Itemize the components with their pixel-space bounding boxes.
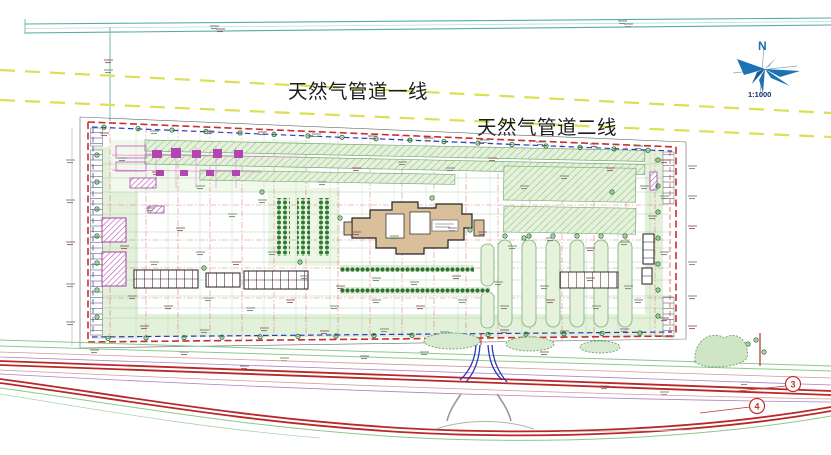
micro-annotation xyxy=(590,144,599,147)
micro-annotation xyxy=(240,366,249,369)
road-marker-4-label: 4 xyxy=(754,402,759,412)
micro-annotation xyxy=(372,300,381,303)
hedge-row xyxy=(340,265,474,272)
parking-strip-left xyxy=(91,150,103,335)
tree-icon xyxy=(762,350,766,354)
site-plan-drawing: N 1:1000 天然气管道一线 天然气管道二线 xyxy=(0,0,831,455)
micro-annotation xyxy=(150,262,159,265)
micro-annotation xyxy=(104,70,113,73)
micro-annotation xyxy=(660,392,669,395)
micro-annotation xyxy=(480,140,489,143)
micro-annotation xyxy=(352,168,361,171)
top-road xyxy=(25,18,831,121)
micro-annotation xyxy=(66,284,75,287)
roadside-vegetation xyxy=(424,333,760,367)
micro-annotation xyxy=(90,350,99,353)
tree-icon xyxy=(522,236,526,240)
central-building-complex xyxy=(344,202,484,254)
micro-annotation xyxy=(424,138,433,141)
micro-annotation xyxy=(634,300,643,303)
entrance-flare-lines xyxy=(460,345,507,382)
micro-annotation xyxy=(688,262,697,265)
micro-annotation xyxy=(280,358,289,361)
pipeline-1-label: 天然气管道一线 xyxy=(288,81,428,103)
tree-icon xyxy=(340,135,344,139)
micro-annotation xyxy=(180,352,189,355)
parking-strip-right xyxy=(663,297,674,337)
pipeline-2-label: 天然气管道二线 xyxy=(477,117,617,139)
micro-annotation xyxy=(410,282,419,285)
tree-icon xyxy=(527,234,531,238)
tree-column xyxy=(277,198,290,256)
micro-annotation xyxy=(688,166,697,169)
tree-icon xyxy=(623,234,627,238)
micro-annotation xyxy=(688,196,697,199)
site-plan-screenshot: N 1:1000 天然气管道一线 天然气管道二线 xyxy=(0,0,831,455)
north-arrow-icon xyxy=(737,58,800,93)
micro-annotation xyxy=(458,300,467,303)
micro-annotation xyxy=(488,158,497,161)
micro-annotation xyxy=(232,262,241,265)
tree-icon xyxy=(430,196,434,200)
tree-column xyxy=(297,198,310,256)
tree-icon xyxy=(754,338,758,342)
micro-annotation xyxy=(452,276,461,279)
micro-annotation xyxy=(688,326,697,329)
micro-annotation xyxy=(634,146,643,149)
micro-annotation xyxy=(536,142,545,145)
micro-annotation xyxy=(204,298,213,301)
micro-annotation xyxy=(540,352,549,355)
micro-annotation xyxy=(258,200,267,203)
micro-annotation xyxy=(688,226,697,229)
micro-annotation xyxy=(150,131,159,134)
micro-annotation xyxy=(228,214,237,217)
compass-north-label: N xyxy=(758,39,767,53)
micro-annotation xyxy=(210,26,219,29)
hedge-row xyxy=(340,287,490,294)
tree-icon xyxy=(575,234,579,238)
micro-annotation xyxy=(286,300,295,303)
road-marker-3-label: 3 xyxy=(790,380,795,390)
compass-scale-label: 1:1000 xyxy=(748,90,771,99)
micro-annotation xyxy=(66,200,75,203)
micro-annotation xyxy=(196,252,205,255)
micro-annotation xyxy=(176,228,185,231)
storage-yard-2 xyxy=(504,206,636,234)
micro-annotation xyxy=(66,322,75,325)
building-label-box xyxy=(432,220,458,231)
parking-strip-left xyxy=(91,128,103,146)
tree-icon xyxy=(599,234,603,238)
tree-icon xyxy=(551,234,555,238)
micro-annotation xyxy=(66,242,75,245)
west-building-1 xyxy=(102,218,126,242)
entrance-splay-marking xyxy=(447,394,511,421)
storage-yard-1 xyxy=(503,166,636,202)
west-building-2 xyxy=(102,252,126,286)
tree-icon xyxy=(503,234,507,238)
micro-annotation xyxy=(246,308,255,311)
micro-annotation xyxy=(66,160,75,163)
micro-annotation xyxy=(688,296,697,299)
tree-column xyxy=(317,198,330,256)
compass-rose: N 1:1000 xyxy=(733,39,800,99)
micro-annotation xyxy=(318,182,327,185)
micro-annotation xyxy=(624,24,633,27)
micro-annotation xyxy=(104,60,113,63)
gas-pipelines xyxy=(0,70,831,137)
